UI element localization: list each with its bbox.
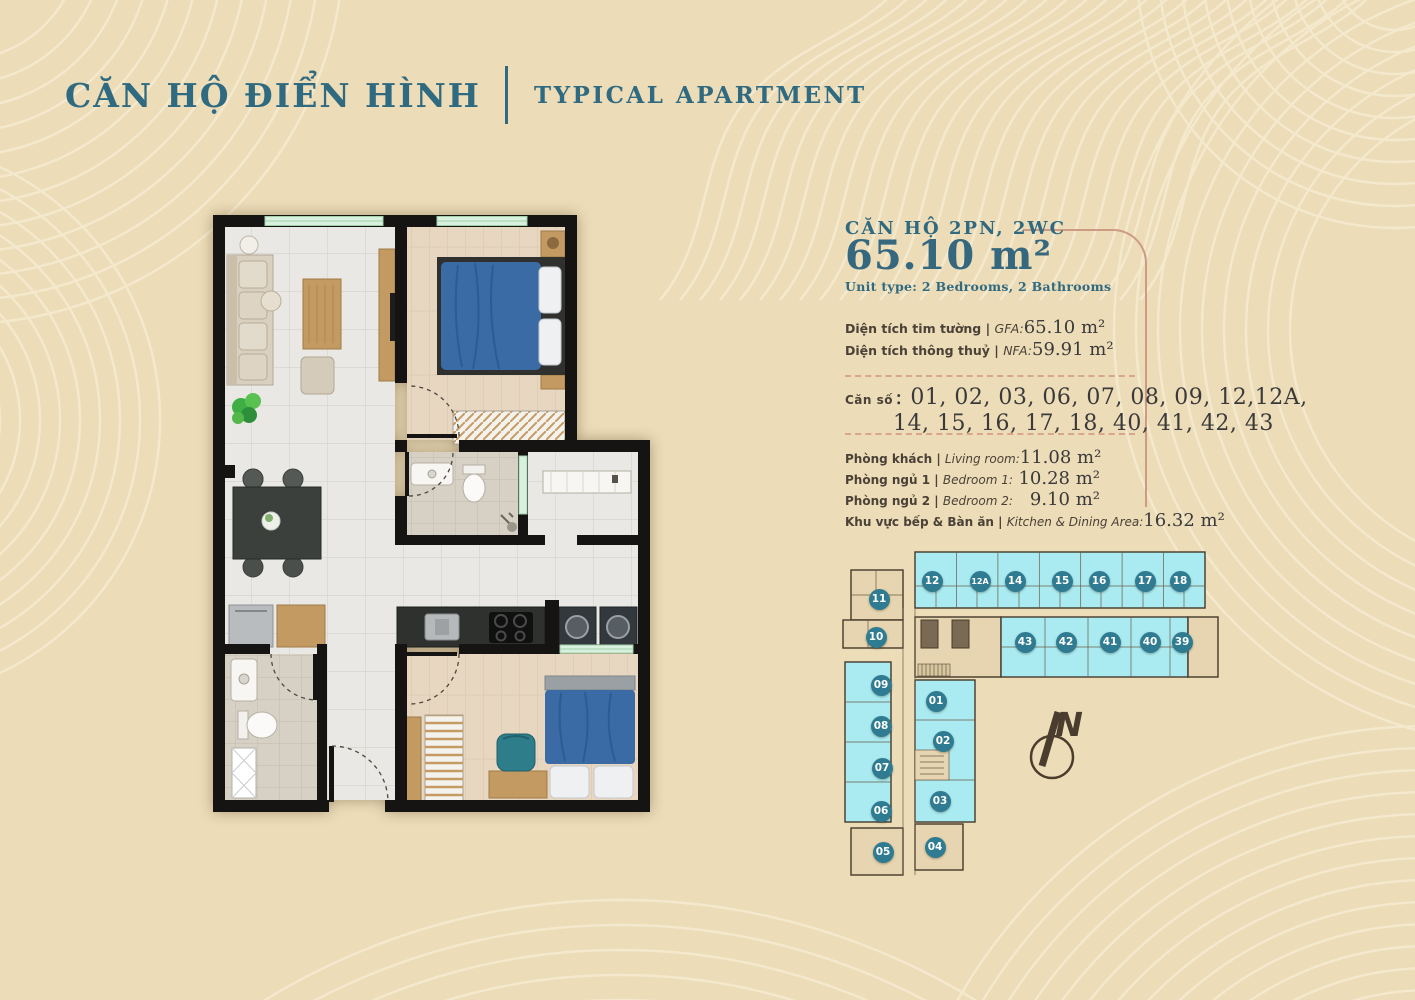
armchair [497,734,535,771]
service-balcony-floor [528,452,638,545]
sofa [227,255,281,385]
unit-badge-06: 06 [871,801,892,822]
unit-badge-10: 10 [866,627,887,648]
metric-row: Diện tích tim tường | GFA: 65.10 m² [845,317,1100,339]
room-label-en: Bedroom 2: [943,494,1013,508]
key-plan-blocks [843,552,1218,875]
unit-badge-08: 08 [871,716,892,737]
title-divider [505,66,508,124]
room-value: 9.10 m² [1030,489,1100,510]
metric-row: Diện tích thông thuỷ | NFA: 59.91 m² [845,339,1100,361]
unit-badge-39: 39 [1172,632,1193,653]
bed-1 [437,257,565,375]
metric-abbr: NFA: [1003,343,1032,358]
bedroom-1 [437,231,565,444]
room-row: Phòng khách | Living room: 11.08 m² [845,447,1100,468]
cabinet [277,605,325,647]
metric-value: 65.10 m² [1024,317,1106,338]
unit-badge-03: 03 [930,791,951,812]
unit-badge-01: 01 [926,691,947,712]
room-row: Phòng ngủ 2 | Bedroom 2: 9.10 m² [845,489,1100,510]
unit-badge-12: 12 [922,571,943,592]
pillow [550,766,589,798]
unit-badge-17: 17 [1135,571,1156,592]
unit-badge-11: 11 [869,589,890,610]
room-label: Phòng khách [845,452,932,466]
tv [390,293,395,341]
unit-badge-05: 05 [873,842,894,863]
room-value: 10.28 m² [1018,468,1100,489]
ottoman [301,357,334,394]
unit-badge-02: 02 [933,731,954,752]
unit-badge-12A: 12A [970,571,991,592]
unit-type: Unit type: 2 Bedrooms, 2 Bathrooms [845,279,1111,294]
pillow [594,766,633,798]
page-title: CĂN HỘ ĐIỂN HÌNH [65,76,481,115]
room-label-en: Bedroom 1: [943,473,1013,487]
unit-badge-43: 43 [1015,632,1036,653]
compass-label: N [1055,705,1083,744]
side-table [240,236,258,254]
unit-numbers-line1: : 01, 02, 03, 06, 07, 08, 09, 12,12A, [895,385,1308,410]
unit-badge-04: 04 [925,837,946,858]
dashed-divider [845,433,1135,435]
unit-area: 65.10 m² [845,236,1052,276]
room-areas: Phòng khách | Living room: 11.08 m² Phòn… [845,447,1100,531]
area-metrics: Diện tích tim tường | GFA: 65.10 m² Diện… [845,317,1100,361]
unit-badge-07: 07 [872,758,893,779]
room-label: Phòng ngủ 2 [845,494,930,508]
shower-2 [232,748,256,798]
service-balcony [543,471,631,493]
room-label: Khu vực bếp & Bàn ăn [845,515,994,529]
metric-value: 59.91 m² [1032,339,1114,360]
toilet-1 [463,474,485,502]
room-label-en: Living room: [945,452,1020,466]
pillow [539,267,561,313]
brochure-page: { "page": { "background": "#ecdcb8", "co… [0,0,1415,1000]
unit-badge-15: 15 [1052,571,1073,592]
pillow [539,319,561,365]
page-subtitle: TYPICAL APARTMENT [534,82,867,109]
metric-label: Diện tích tim tường [845,321,981,336]
unit-badge-09: 09 [871,675,892,696]
room-value: 16.32 m² [1143,510,1225,531]
wardrobe-1 [453,411,565,444]
toilet-2 [247,712,277,738]
room-label: Phòng ngủ 1 [845,473,930,487]
metric-label: Diện tích thông thuỷ [845,343,990,358]
compass-icon: N [1031,705,1083,778]
key-plan: N 1212A141516171843424140391110090807060… [838,540,1238,890]
unit-badge-42: 42 [1056,632,1077,653]
unit-numbers: Căn số: 01, 02, 03, 06, 07, 08, 09, 12,1… [845,385,1140,436]
kitchen [229,605,637,647]
metric-abbr: GFA: [995,321,1024,336]
dashed-divider [845,375,1135,377]
room-value: 11.08 m² [1020,447,1102,468]
unit-badge-16: 16 [1089,571,1110,592]
page-header: CĂN HỘ ĐIỂN HÌNH TYPICAL APARTMENT [65,66,867,124]
unit-badge-40: 40 [1140,632,1161,653]
room-label-en: Kitchen & Dining Area: [1007,515,1144,529]
unit-badge-18: 18 [1170,571,1191,592]
apartment-floor-plan [213,215,660,812]
wardrobe-2 [425,715,463,801]
desk [489,771,547,798]
unit-badge-41: 41 [1100,632,1121,653]
room-row: Phòng ngủ 1 | Bedroom 1: 10.28 m² [845,468,1100,489]
unit-badge-14: 14 [1005,571,1026,592]
room-row: Khu vực bếp & Bàn ăn | Kitchen & Dining … [845,510,1100,531]
unit-numbers-label: Căn số [845,393,893,407]
